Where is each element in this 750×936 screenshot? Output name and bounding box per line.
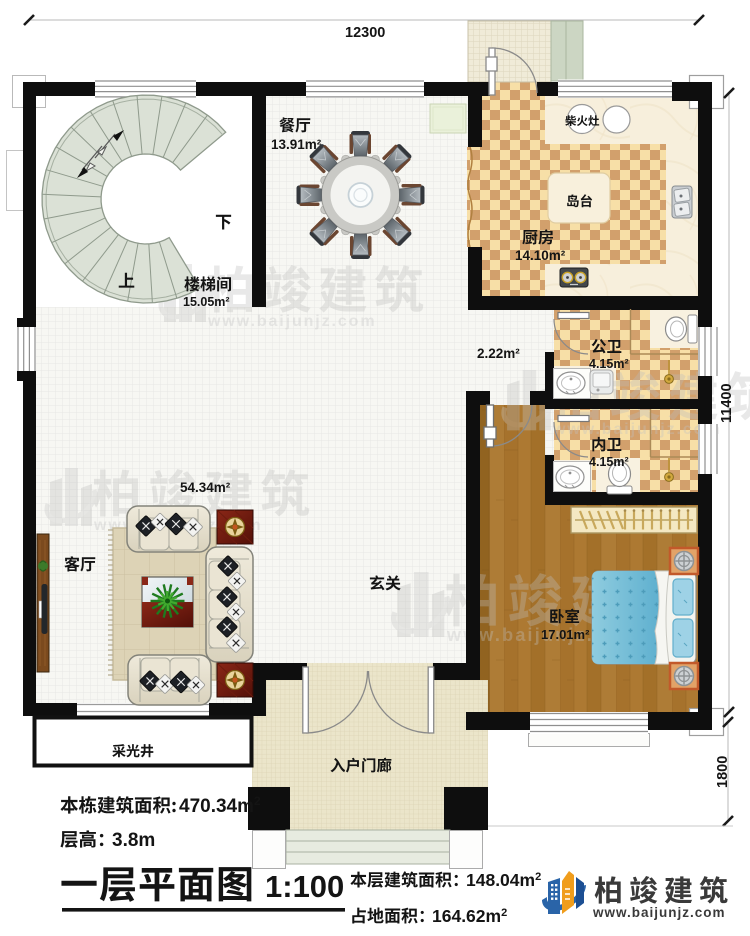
svg-text:54.34m²: 54.34m² (180, 480, 231, 495)
svg-text:www.baijunjz.com: www.baijunjz.com (592, 905, 726, 920)
svg-text:www.baijunjz.com: www.baijunjz.com (552, 421, 722, 438)
svg-text:1:100: 1:100 (265, 869, 344, 904)
svg-text:2.22m²: 2.22m² (477, 346, 520, 361)
svg-text:164.62m2: 164.62m2 (432, 906, 507, 926)
svg-text:4.15m²: 4.15m² (589, 357, 629, 371)
svg-text:17.01m²: 17.01m² (541, 627, 590, 642)
svg-text:1800: 1800 (715, 756, 731, 788)
svg-text:470.34m2: 470.34m2 (179, 794, 261, 817)
svg-text:15.05m²: 15.05m² (183, 295, 230, 309)
svg-text:4.15m²: 4.15m² (589, 455, 629, 469)
svg-text:www.baijunjz.com: www.baijunjz.com (207, 313, 377, 330)
svg-text:14.10m²: 14.10m² (515, 248, 566, 263)
svg-text:3.8m: 3.8m (112, 830, 155, 851)
svg-text:11400: 11400 (719, 383, 735, 423)
svg-text:148.04m2: 148.04m2 (466, 870, 541, 890)
svg-text:13.91m²: 13.91m² (271, 137, 322, 152)
svg-text:12300: 12300 (345, 25, 385, 41)
